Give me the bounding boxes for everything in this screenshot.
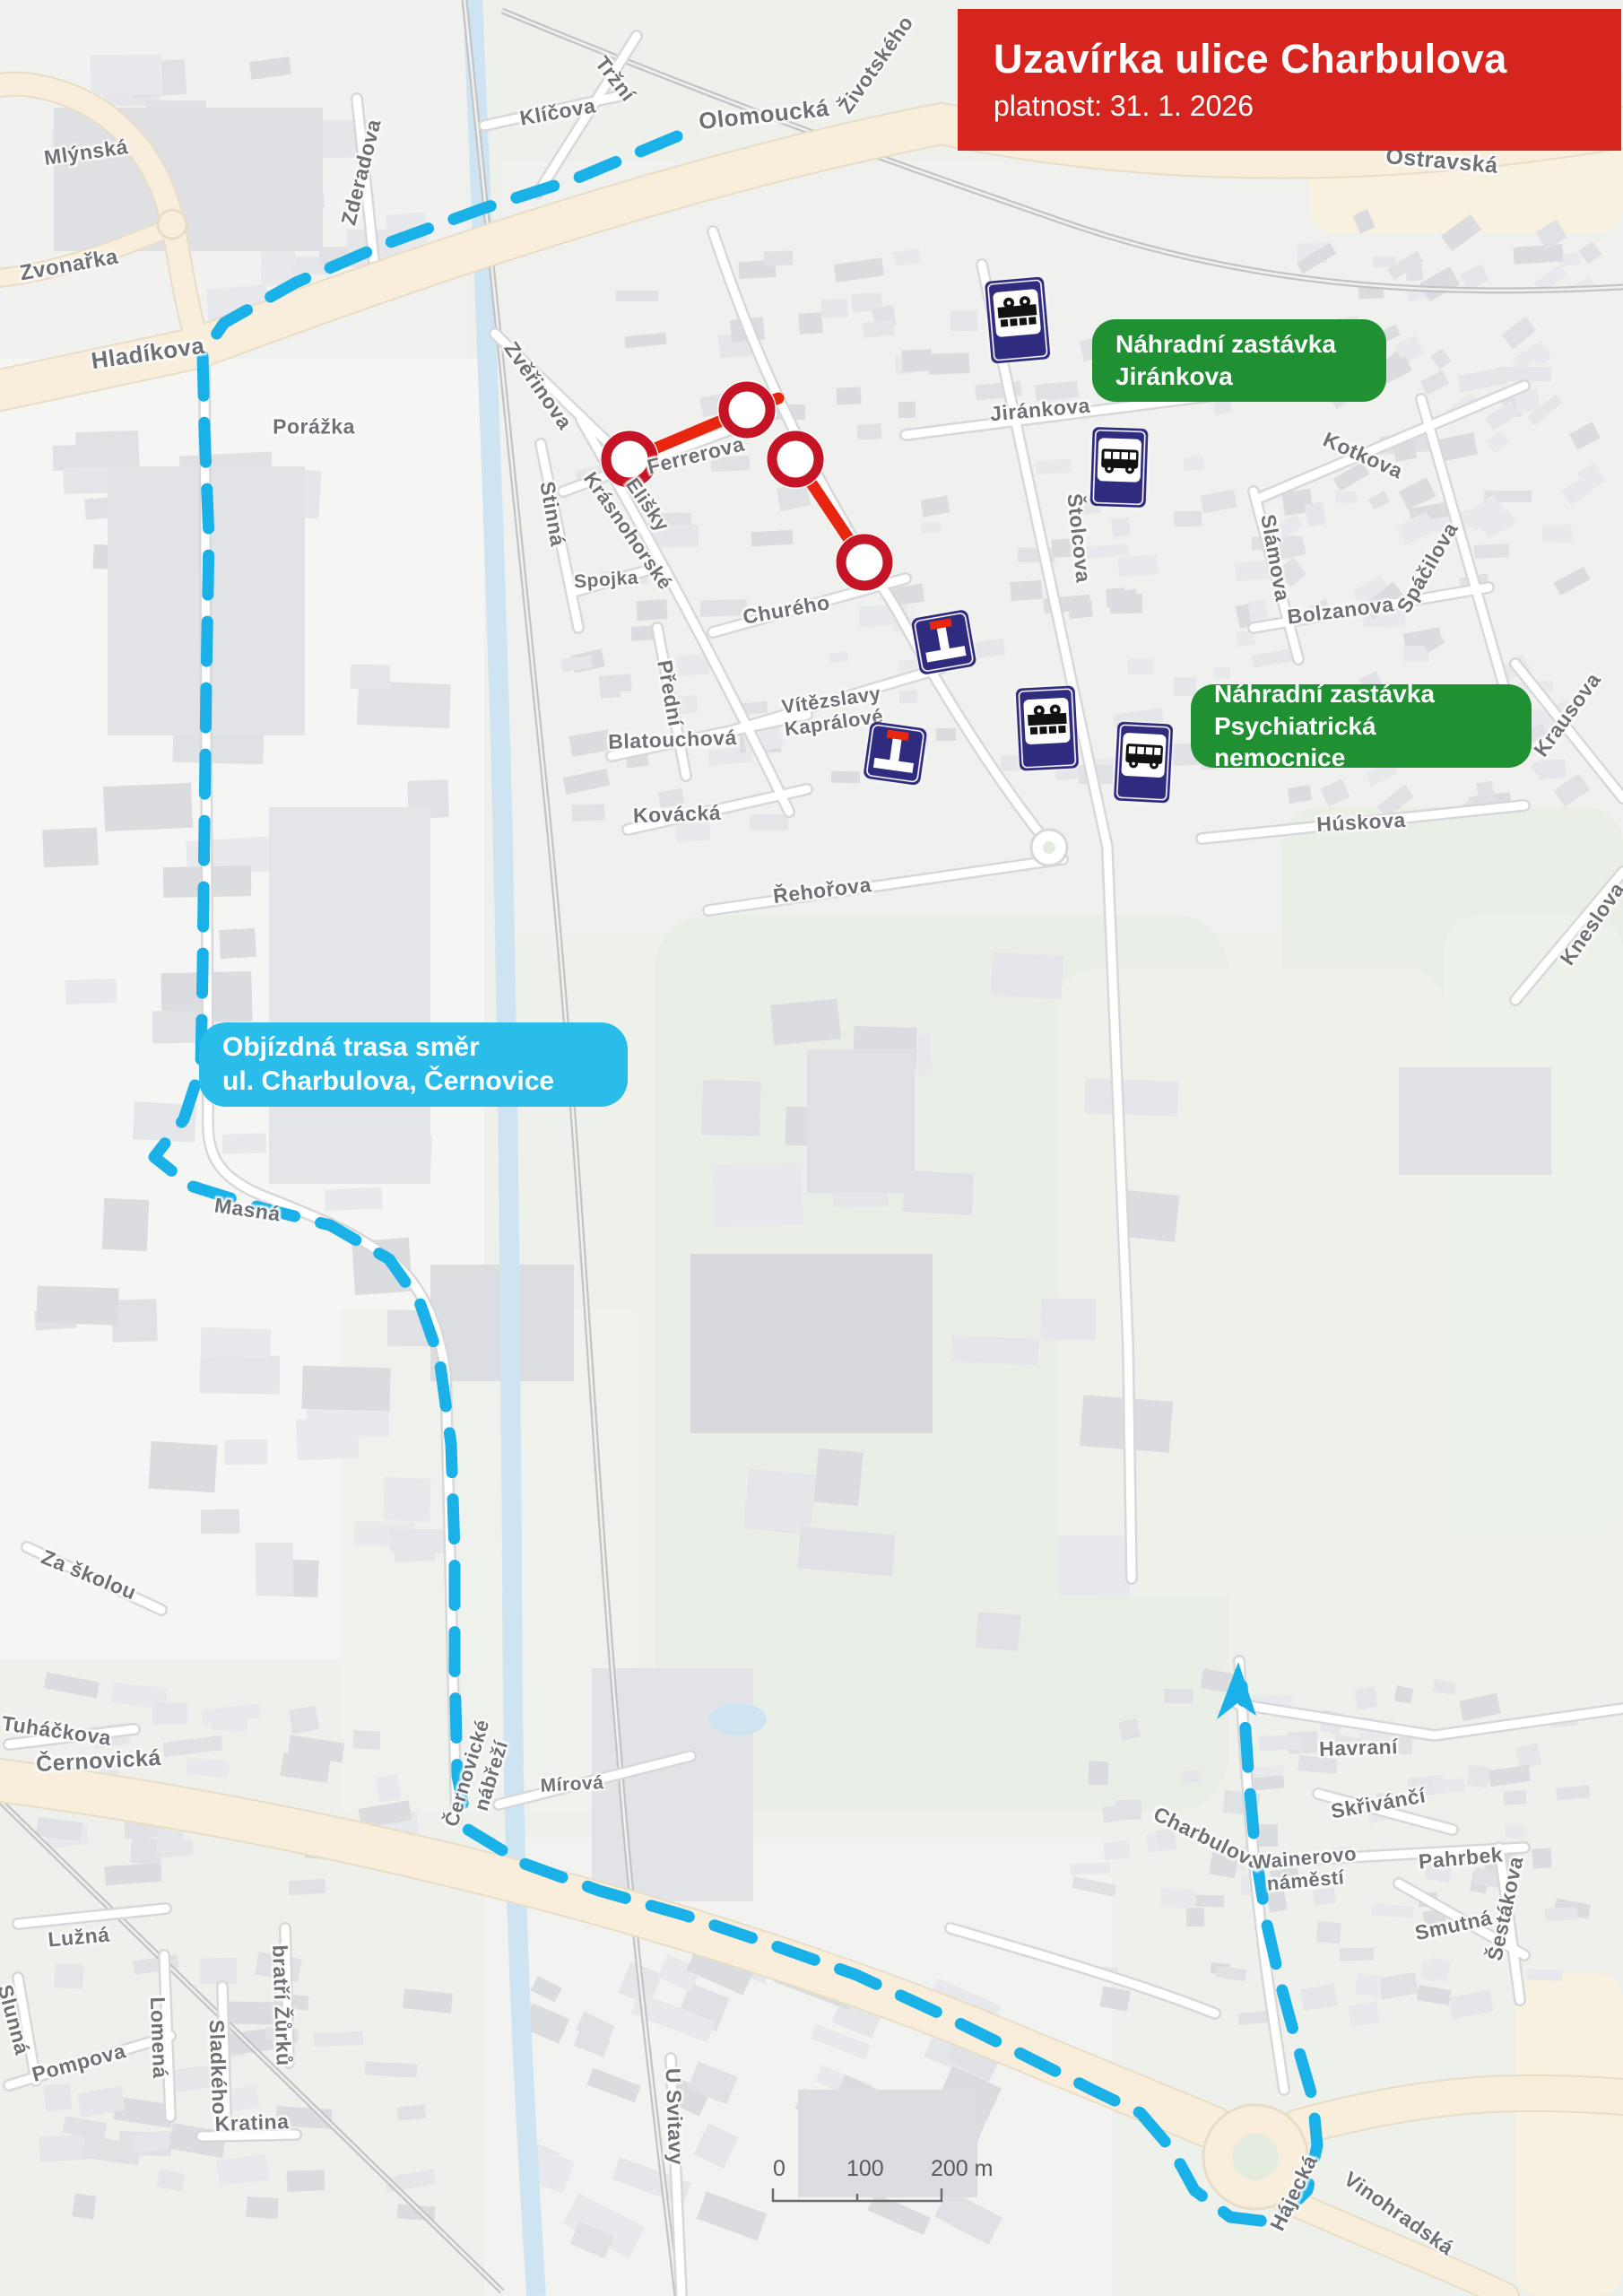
dead-end-sign [910, 609, 977, 680]
bus-stop-sign [1089, 427, 1148, 512]
tram-icon [985, 276, 1051, 363]
scale-bar-ruler [771, 2183, 968, 2205]
bus-icon [1090, 427, 1149, 508]
callout-line: Náhradní zastávka [1115, 328, 1363, 361]
callout-line: Psychiatrická nemocnice [1214, 710, 1508, 775]
tram-icon [1016, 685, 1080, 770]
scale-label-200m: 200 m [931, 2156, 993, 2182]
callout-line: Objízdná trasa směr [222, 1031, 604, 1065]
bus-stop-sign [1114, 721, 1174, 807]
callout-line: ul. Charbulova, Černovice [222, 1065, 604, 1099]
bus-icon [1114, 721, 1174, 803]
scale-bar: 0 100 200 m [771, 2156, 1004, 2210]
map-title-panel: Uzavírka ulice Charbulova platnost: 31. … [958, 9, 1621, 151]
dead-end-icon [863, 721, 927, 786]
scale-label-0: 0 [773, 2156, 785, 2182]
scale-label-100: 100 [846, 2156, 884, 2182]
callout-replacement-stop-jirankova: Náhradní zastávka Jiránkova [1092, 319, 1386, 402]
callout-line: Jiránkova [1115, 361, 1363, 393]
map-title: Uzavírka ulice Charbulova [994, 36, 1621, 83]
dead-end-sign [863, 721, 928, 790]
callout-detour-route: Objízdná trasa směr ul. Charbulova, Čern… [199, 1022, 628, 1107]
callout-replacement-stop-psychiatricka: Náhradní zastávka Psychiatrická nemocnic… [1191, 684, 1532, 768]
tram-stop-sign [985, 276, 1051, 368]
detour-map: MlýnskáZvonařkaHladíkovaZderadovaTržníKl… [0, 0, 1623, 2296]
tram-stop-sign [1016, 685, 1080, 775]
map-validity: platnost: 31. 1. 2026 [994, 90, 1621, 123]
dead-end-icon [910, 609, 976, 675]
callout-line: Náhradní zastávka [1214, 678, 1508, 710]
